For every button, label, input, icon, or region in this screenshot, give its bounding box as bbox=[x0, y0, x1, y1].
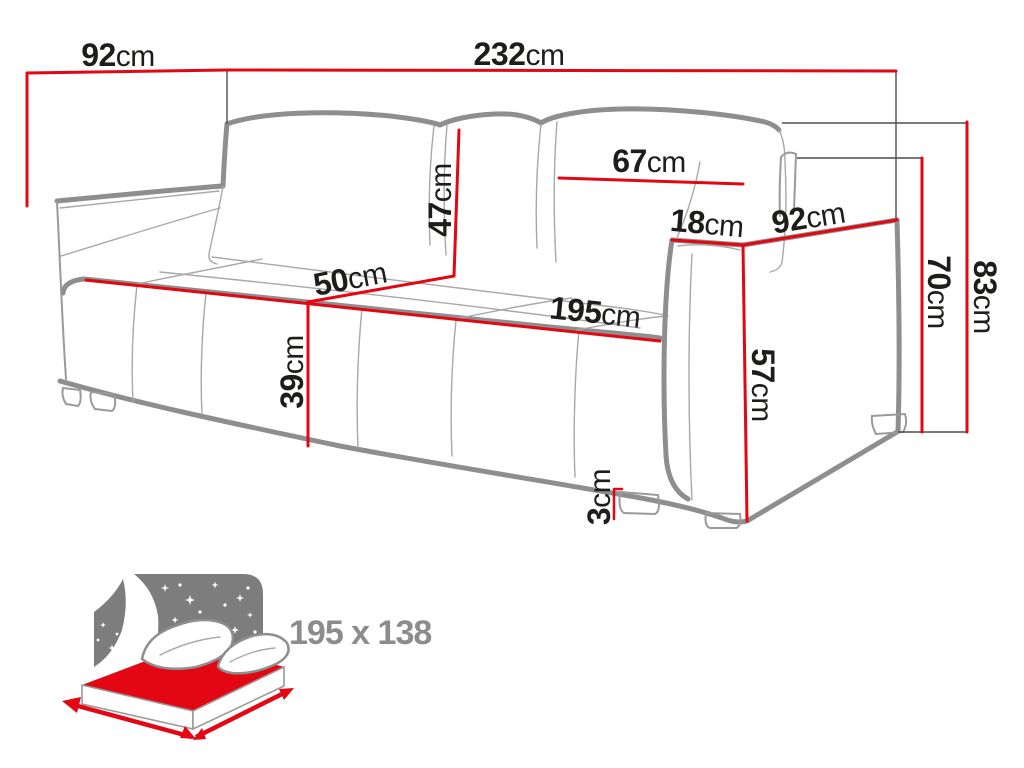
label-back-cushion-width: 67cm bbox=[612, 143, 686, 179]
armrest-back-panel-top bbox=[781, 153, 796, 157]
label-seat-height: 39cm bbox=[274, 335, 310, 409]
label-top-depth: 92cm bbox=[81, 37, 155, 73]
label-leg-height: 3cm bbox=[581, 469, 617, 525]
label-armrest-front-height: 57cm bbox=[745, 348, 781, 422]
leg-back-right bbox=[872, 414, 906, 434]
dimension-lines bbox=[27, 70, 967, 521]
front-seam-5 bbox=[574, 331, 579, 477]
diagram-canvas: 92cm 232cm 67cm 47cm 50cm 195cm 39cm 18c… bbox=[0, 0, 1024, 768]
cushion1-left-lower-edge bbox=[209, 186, 223, 264]
label-total-width: 232cm bbox=[474, 36, 565, 72]
sofa-back-seat-crease bbox=[61, 208, 220, 256]
front-seam-3 bbox=[357, 308, 362, 448]
extension-lines bbox=[227, 71, 968, 432]
sleeping-function-bed-icon bbox=[62, 574, 294, 740]
armrest-front-crease bbox=[689, 254, 692, 500]
armrest-front-left-edge bbox=[664, 240, 688, 499]
label-armrest-width: 18cm bbox=[669, 202, 745, 244]
armrest-right-back-edge bbox=[897, 220, 899, 431]
front-seam-1 bbox=[132, 285, 137, 401]
sofa-sketch bbox=[57, 109, 906, 528]
sofa-dimension-diagram: 92cm 232cm 67cm 47cm 50cm 195cm 39cm 18c… bbox=[0, 0, 1024, 768]
label-armrest-depth: 92cm bbox=[769, 194, 847, 241]
leg-left-1 bbox=[62, 388, 80, 406]
sleeping-area-size-label: 195 x 138 bbox=[289, 614, 431, 652]
cushion3-left-crease bbox=[554, 122, 557, 262]
dim-line-top-width bbox=[27, 70, 896, 73]
label-back-cushion-height: 47cm bbox=[422, 163, 458, 237]
back-cushions-top-edge bbox=[227, 109, 779, 130]
cushion3-right-edge bbox=[770, 130, 786, 272]
night-sky-sliver bbox=[94, 579, 126, 667]
front-seam-4 bbox=[451, 320, 456, 456]
label-total-height: 83cm bbox=[967, 260, 1003, 334]
cushion2-right-crease bbox=[536, 124, 541, 248]
cushion1-left-edge bbox=[223, 124, 227, 186]
label-armrest-height: 70cm bbox=[921, 255, 957, 329]
front-seam-2 bbox=[201, 293, 206, 414]
